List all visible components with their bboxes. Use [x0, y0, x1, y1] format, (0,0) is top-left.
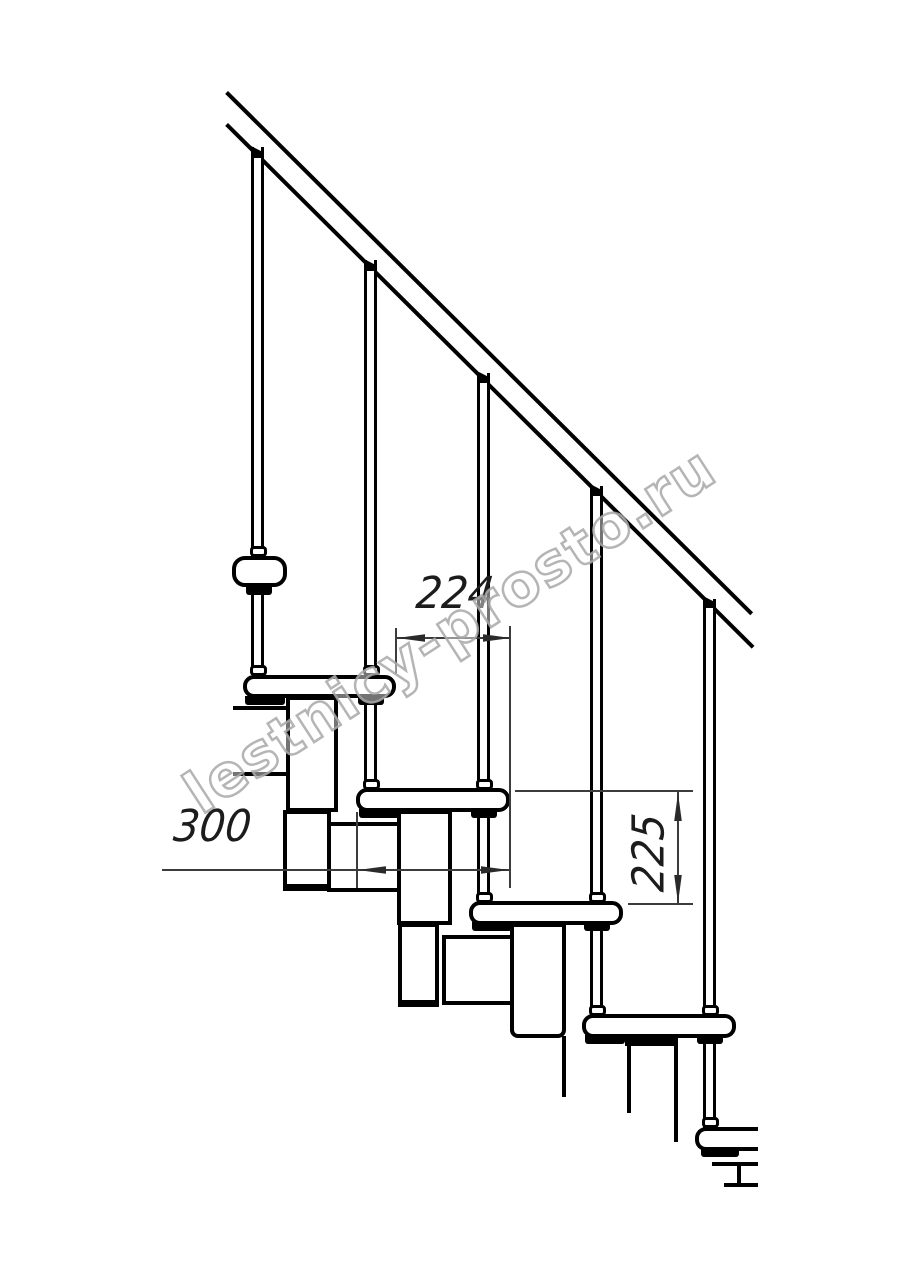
arrowhead-225-down [673, 875, 683, 903]
ext-line-225-top [515, 790, 693, 792]
module-box-3 [442, 935, 519, 1005]
module-edge-line-1 [562, 1036, 566, 1097]
ext-line-300-left [356, 812, 358, 888]
collar-b1-tread2 [250, 665, 267, 676]
baluster-1 [251, 147, 264, 675]
collar-b2-tread3 [363, 779, 380, 790]
clamp-tread-6 [701, 1148, 739, 1157]
module-bottom-stub-1 [712, 1162, 758, 1166]
module-band-4-left [627, 1040, 631, 1113]
module-bottom-edge [737, 1162, 741, 1187]
staircase-drawing: 224 300 225 lestnicy-prosto.ru [0, 0, 914, 1280]
collar-b1-tread1 [250, 546, 267, 557]
module-band-3 [510, 923, 566, 1038]
clamp-tread-3-front [471, 809, 497, 818]
baluster-5 [703, 599, 716, 1128]
module-band-2 [397, 810, 452, 925]
clamp-tread-5-front [697, 1035, 723, 1044]
arrowhead-225-up [673, 793, 683, 821]
module-lower-1 [283, 810, 331, 891]
module-band-4-top [625, 1038, 678, 1046]
collar-b3-tread4 [476, 892, 493, 903]
collar-b3-tread3 [476, 779, 493, 790]
collar-b5-tread6 [702, 1117, 719, 1128]
ext-line-224-right [509, 626, 511, 888]
module-box-2 [327, 822, 406, 892]
clamp-tread-3-back [359, 809, 399, 818]
collar-b5-tread5 [702, 1005, 719, 1016]
clamp-tread-4-front [584, 922, 610, 931]
clamp-tread-4-back [472, 922, 512, 931]
module-band-4-right [674, 1040, 678, 1142]
dim-line-300 [162, 869, 510, 871]
tread-1-end-view [232, 556, 287, 587]
collar-b4-tread4 [589, 892, 606, 903]
collar-b4-tread5 [589, 1005, 606, 1016]
module-lower-2 [398, 923, 439, 1007]
baluster-rail-joint-5 [703, 596, 716, 608]
dim-label-riser: 225 [624, 799, 675, 906]
clamp-under-tread-1 [246, 585, 272, 595]
clamp-tread-5-back [585, 1035, 625, 1044]
module-bottom-stub-2 [724, 1183, 758, 1187]
